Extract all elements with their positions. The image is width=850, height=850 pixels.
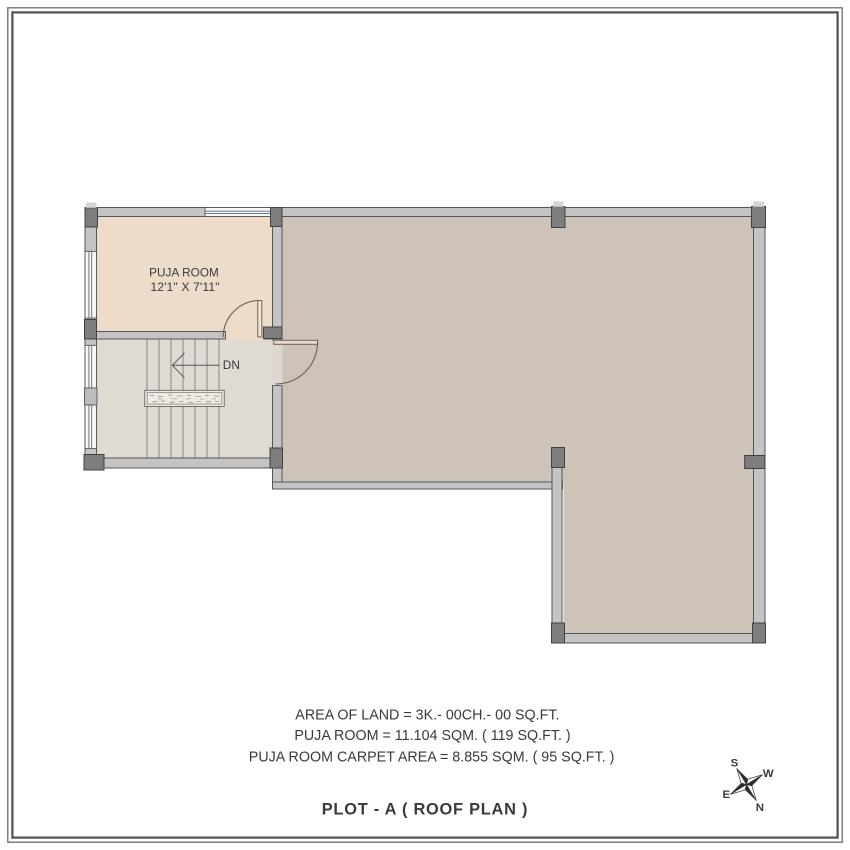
svg-text:W: W <box>763 768 774 780</box>
svg-text:PUJA ROOM = 11.104 SQM. ( 119: PUJA ROOM = 11.104 SQM. ( 119 SQ.FT. ) <box>294 728 570 744</box>
svg-text:PUJA ROOM: PUJA ROOM <box>149 267 219 280</box>
svg-text:N: N <box>756 802 764 814</box>
svg-text:S: S <box>731 758 739 770</box>
svg-text:DN: DN <box>223 358 240 372</box>
svg-text:PLOT - A ( ROOF PLAN ): PLOT - A ( ROOF PLAN ) <box>322 800 529 818</box>
svg-text:12'1" X 7'11": 12'1" X 7'11" <box>150 280 219 294</box>
svg-text:AREA OF LAND = 3K.- 00CH.- 00: AREA OF LAND = 3K.- 00CH.- 00 SQ.FT. <box>295 708 559 724</box>
svg-text:PUJA ROOM CARPET AREA = 8.855: PUJA ROOM CARPET AREA = 8.855 SQM. ( 95 … <box>249 750 615 766</box>
svg-text:E: E <box>722 789 730 801</box>
